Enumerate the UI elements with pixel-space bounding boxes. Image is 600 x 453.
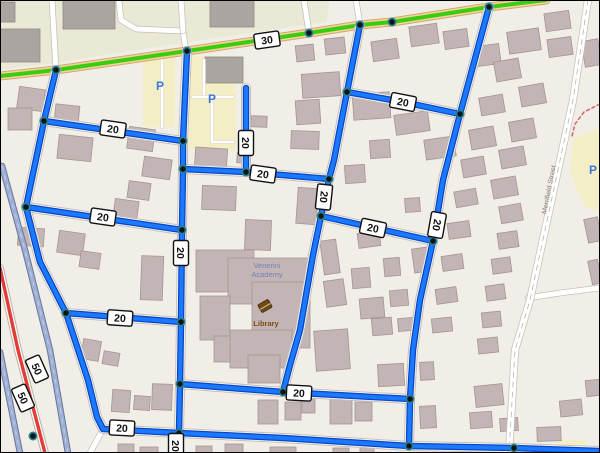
building	[196, 446, 212, 453]
building	[314, 329, 351, 371]
route-node[interactable]	[183, 47, 190, 54]
school-name-label: Venerini	[253, 261, 280, 270]
speed-badge[interactable]: 20	[250, 165, 277, 183]
speed-badge-value: 20	[106, 123, 119, 137]
route-node[interactable]	[388, 18, 395, 25]
route-node[interactable]	[179, 137, 186, 144]
building	[409, 23, 440, 47]
building	[127, 181, 151, 201]
building	[371, 38, 400, 61]
building	[369, 139, 390, 158]
building	[419, 406, 436, 429]
building	[225, 444, 243, 453]
speed-badge[interactable]: 20	[90, 208, 117, 226]
building	[499, 146, 527, 169]
speed-badge-value: 20	[169, 440, 181, 452]
building	[508, 118, 536, 142]
speed-badge-value: 20	[396, 96, 410, 110]
building	[8, 108, 32, 130]
building	[468, 126, 496, 150]
speed-badge[interactable]: 20	[109, 420, 135, 436]
route-node[interactable]	[343, 88, 350, 95]
building	[394, 111, 430, 136]
building	[142, 156, 173, 180]
building	[469, 411, 492, 428]
building	[134, 395, 151, 410]
building	[420, 362, 435, 381]
route-node[interactable]	[177, 318, 184, 325]
route-node[interactable]	[29, 432, 36, 439]
building	[200, 296, 230, 340]
route-node[interactable]	[62, 309, 69, 316]
building	[443, 28, 469, 49]
route-node[interactable]	[325, 175, 332, 182]
building	[431, 317, 452, 333]
building	[481, 311, 501, 328]
speed-badge-value: 20	[114, 312, 127, 325]
building	[248, 355, 280, 383]
building	[491, 257, 512, 274]
building	[258, 400, 278, 424]
speed-badge-value: 20	[256, 168, 269, 182]
building	[323, 279, 346, 308]
building	[435, 287, 458, 305]
building	[295, 44, 315, 62]
building	[493, 58, 521, 82]
building	[454, 188, 478, 208]
route-node[interactable]	[405, 442, 412, 449]
route-node[interactable]	[176, 380, 183, 387]
building	[344, 164, 365, 183]
route-node[interactable]	[356, 21, 363, 28]
route-node[interactable]	[242, 168, 249, 175]
building	[559, 399, 583, 417]
building	[474, 384, 504, 408]
building	[499, 203, 524, 224]
route-node[interactable]	[485, 3, 492, 10]
map-canvas[interactable]: 30202020202020202020202020205050Merrifie…	[0, 0, 600, 453]
building	[441, 254, 464, 272]
speed-badge[interactable]: 20	[169, 434, 184, 453]
route-node[interactable]	[456, 110, 463, 117]
route-node[interactable]	[279, 388, 286, 395]
speed-badge-value: 20	[429, 218, 443, 232]
speed-badge[interactable]: 20	[239, 131, 254, 156]
building	[405, 197, 421, 212]
speed-badge-value: 20	[293, 388, 305, 401]
speed-badge-value: 20	[96, 211, 109, 225]
route-node[interactable]	[317, 212, 324, 219]
building	[359, 297, 385, 319]
building	[251, 116, 267, 128]
building	[485, 284, 506, 301]
building	[210, 0, 254, 27]
building	[140, 256, 164, 301]
building	[497, 231, 519, 250]
speed-badge[interactable]: 20	[174, 241, 189, 266]
building	[371, 317, 392, 336]
route-node[interactable]	[52, 66, 59, 73]
building	[244, 220, 271, 251]
building	[118, 444, 134, 453]
library-label: Library	[253, 319, 279, 328]
speed-badge-value: 20	[116, 423, 128, 436]
building	[544, 10, 571, 31]
speed-badge-value: 30	[260, 34, 273, 48]
speed-badge[interactable]: 20	[100, 120, 127, 138]
building	[461, 156, 487, 178]
building	[377, 363, 404, 386]
route-node[interactable]	[429, 237, 436, 244]
building	[351, 267, 371, 288]
speed-badge[interactable]: 30	[254, 31, 281, 49]
speed-badge[interactable]: 20	[286, 385, 312, 401]
building	[57, 134, 93, 161]
route-node[interactable]	[179, 165, 186, 172]
building	[63, 0, 115, 29]
building	[285, 402, 301, 420]
speed-badge[interactable]: 20	[315, 184, 333, 210]
building	[324, 37, 346, 55]
school-name-label: Academy	[251, 270, 283, 279]
parking-icon: P	[156, 79, 164, 93]
building	[102, 351, 120, 367]
building	[479, 94, 506, 116]
speed-badge-value: 20	[239, 137, 251, 149]
building	[383, 257, 401, 276]
building	[111, 389, 130, 412]
route-node[interactable]	[510, 444, 517, 451]
building	[389, 289, 408, 307]
building	[152, 384, 173, 411]
building	[537, 427, 561, 442]
speed-badge[interactable]: 20	[107, 310, 133, 327]
building	[547, 36, 573, 57]
building	[355, 402, 372, 421]
building	[291, 131, 320, 150]
building	[585, 379, 600, 396]
building	[295, 99, 321, 125]
building	[0, 29, 40, 62]
building	[518, 83, 546, 107]
building	[301, 72, 341, 99]
building	[330, 398, 352, 424]
route-node[interactable]	[40, 117, 47, 124]
speed-badge-value: 20	[317, 190, 330, 203]
parking-icon: P	[589, 163, 597, 177]
route-node[interactable]	[178, 226, 185, 233]
parking-icon: P	[208, 92, 216, 106]
route-node[interactable]	[406, 395, 413, 402]
route-node[interactable]	[22, 203, 29, 210]
building	[205, 57, 243, 83]
building	[202, 185, 237, 210]
speed-badge-value: 20	[174, 247, 186, 259]
building	[477, 337, 498, 354]
building	[447, 221, 471, 240]
map-viewport[interactable]: 30202020202020202020202020205050Merrifie…	[0, 0, 600, 453]
building	[491, 176, 519, 199]
building	[0, 2, 15, 22]
building	[79, 251, 101, 270]
building	[507, 28, 542, 54]
route-node[interactable]	[305, 29, 312, 36]
